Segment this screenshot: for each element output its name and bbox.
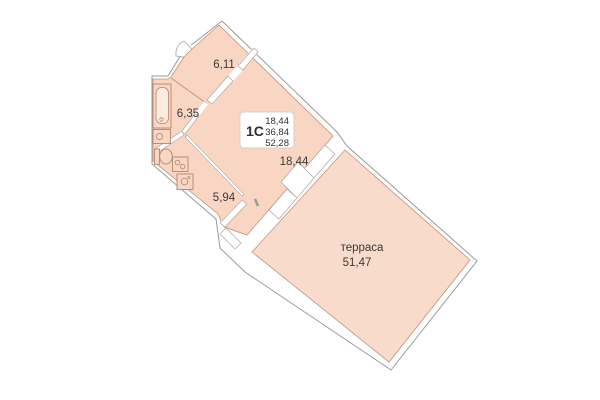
kitchen-area-label: 5,94 [213, 192, 236, 204]
unit-code-label: 1С [246, 123, 264, 139]
unit-total-area: 36,84 [265, 127, 289, 138]
kitchen-sink-icon [177, 174, 193, 190]
hall-area-label: 6,11 [213, 59, 235, 71]
unit-info-box: 1С 18,44 36,84 52,28 [240, 112, 294, 149]
floorplan-canvas: 6,11 6,35 5,94 18,44 терраса 51,47 1С 18… [0, 0, 600, 400]
floorplan-svg: 6,11 6,35 5,94 18,44 терраса 51,47 1С 18… [0, 0, 600, 400]
terrace-area-label: 51,47 [343, 257, 372, 269]
sink-icon [153, 130, 171, 144]
terrace-name-label: терраса [341, 242, 384, 254]
bathroom-area-label: 6,35 [177, 108, 199, 120]
toilet-icon [155, 149, 173, 165]
bathtub-icon [153, 84, 171, 128]
unit-total-with-terrace: 52,28 [265, 138, 289, 149]
unit-living-area: 18,44 [265, 116, 289, 127]
washer-icon [173, 157, 189, 172]
living-area-label: 18,44 [280, 156, 309, 168]
